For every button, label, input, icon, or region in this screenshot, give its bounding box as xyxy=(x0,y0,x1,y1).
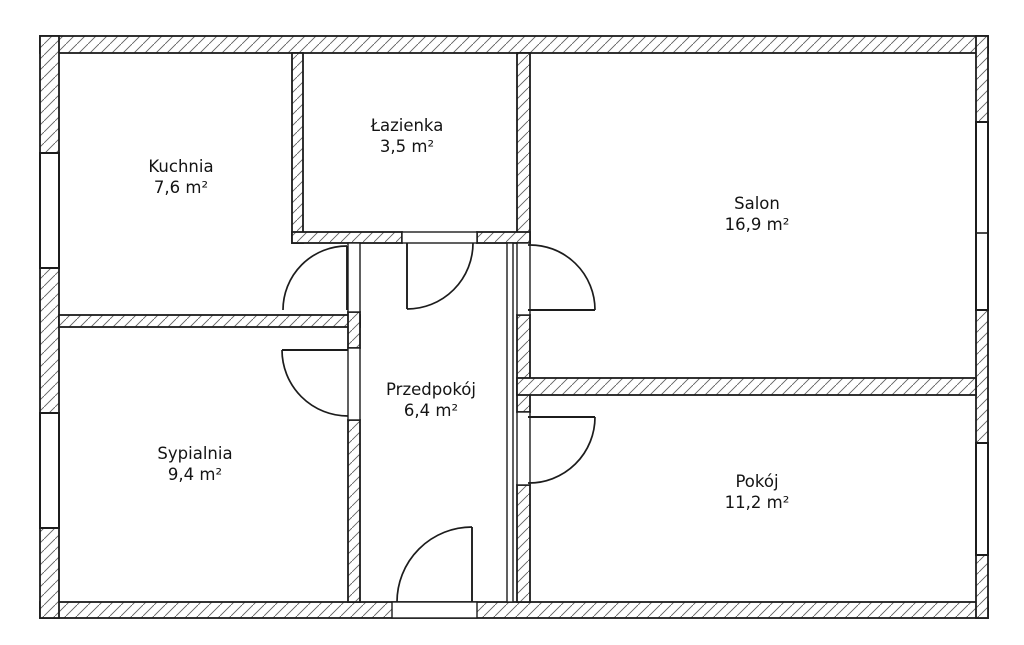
room-area-salon: 16,9 m² xyxy=(725,215,790,234)
room-label-sypialnia: Sypialnia xyxy=(157,444,232,463)
openings-layer xyxy=(348,232,530,618)
room-label-salon: Salon xyxy=(734,194,780,213)
wall-kuchnia-sypialnia xyxy=(59,315,360,327)
window-sypialnia xyxy=(40,413,59,528)
wall-lazienka-left xyxy=(292,53,303,243)
wall-salon-pokoj-divider xyxy=(517,378,976,395)
door-arc-lazienka xyxy=(407,243,473,309)
opening-kuchnia-door xyxy=(348,243,360,312)
room-label-pokoj: Pokój xyxy=(735,472,778,491)
door-arc-salon xyxy=(528,245,595,310)
wall-lazienka-right xyxy=(517,53,530,243)
room-area-sypialnia: 9,4 m² xyxy=(168,465,222,484)
wall-hall-left-lower xyxy=(348,420,360,602)
room-labels-layer: Kuchnia7,6 m²Łazienka3,5 m²Salon16,9 m²S… xyxy=(148,116,789,512)
room-area-przedpokoj: 6,4 m² xyxy=(404,401,458,420)
wall-salon-west-mid xyxy=(517,315,530,412)
door-arc-pokoj xyxy=(528,417,595,483)
room-label-przedpokoj: Przedpokój xyxy=(386,380,476,399)
opening-entrance-door xyxy=(392,602,477,618)
wall-lazienka-bottom-right xyxy=(477,232,530,243)
outer-wall-left xyxy=(40,36,59,618)
opening-pokoj-door xyxy=(517,412,530,485)
window-salon xyxy=(976,122,988,310)
wall-hall-thin-right xyxy=(507,243,513,602)
room-label-kuchnia: Kuchnia xyxy=(148,157,213,176)
opening-salon-door xyxy=(517,243,530,315)
room-area-lazienka: 3,5 m² xyxy=(380,137,434,156)
room-label-lazienka: Łazienka xyxy=(370,116,444,135)
room-area-pokoj: 11,2 m² xyxy=(725,493,790,512)
walls-layer xyxy=(40,36,988,618)
door-arc-entrance xyxy=(397,527,472,602)
window-kuchnia xyxy=(40,153,59,268)
floor-plan-page: Kuchnia7,6 m²Łazienka3,5 m²Salon16,9 m²S… xyxy=(0,0,1024,645)
wall-lazienka-bottom-left xyxy=(292,232,402,243)
opening-lazienka-door xyxy=(402,232,477,243)
wall-salon-west-lower xyxy=(517,485,530,602)
floor-plan-canvas: Kuchnia7,6 m²Łazienka3,5 m²Salon16,9 m²S… xyxy=(0,0,1024,645)
room-area-kuchnia: 7,6 m² xyxy=(154,178,208,197)
window-pokoj xyxy=(976,443,988,555)
wall-hall-left-mid xyxy=(348,312,360,348)
door-arc-sypialnia xyxy=(282,350,348,416)
outer-wall-top xyxy=(40,36,988,53)
doors-layer xyxy=(282,243,595,602)
outer-wall-bottom xyxy=(40,602,988,618)
door-arc-kuchnia xyxy=(283,246,347,310)
opening-sypialnia-door xyxy=(348,348,360,420)
